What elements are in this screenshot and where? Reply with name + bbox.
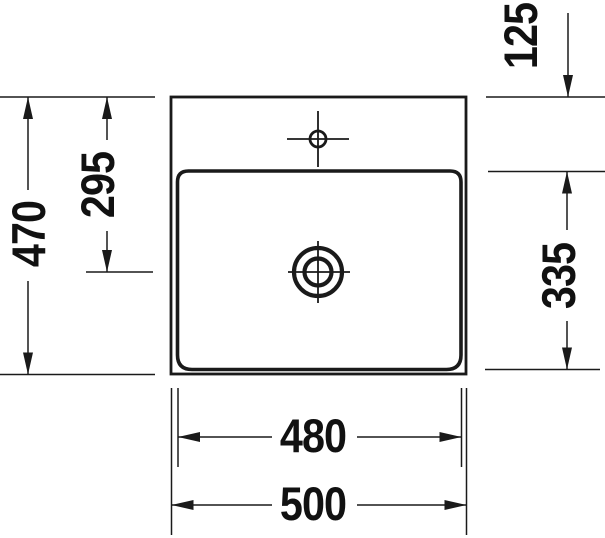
- dimension-470: 470: [4, 97, 56, 375]
- dimension-295: 295: [73, 97, 125, 272]
- arrow-right-icon: [445, 500, 467, 510]
- washbasin-dimension-diagram: 470 295 125 335 480: [0, 0, 605, 538]
- dimension-label-125: 125: [496, 3, 548, 70]
- dimension-label-500: 500: [280, 479, 346, 531]
- dimension-480: 480: [178, 411, 462, 463]
- arrow-left-icon: [178, 432, 200, 442]
- arrow-down-icon: [563, 75, 573, 97]
- dimension-label-480: 480: [280, 411, 346, 463]
- arrow-up-icon: [23, 97, 33, 119]
- dimension-label-295: 295: [73, 152, 125, 219]
- dimension-125: 125: [496, 3, 573, 97]
- dimension-label-335: 335: [534, 243, 586, 310]
- arrow-down-icon: [23, 353, 33, 375]
- dimension-335: 335: [534, 172, 586, 370]
- arrow-left-icon: [172, 500, 194, 510]
- arrow-up-icon: [102, 97, 112, 119]
- arrow-down-icon: [102, 250, 112, 272]
- basin-inner-bowl-outline: [178, 171, 462, 370]
- arrow-right-icon: [440, 432, 462, 442]
- dimension-label-470: 470: [4, 201, 56, 267]
- technical-drawing-canvas: 470 295 125 335 480: [0, 0, 605, 538]
- drain-icon: [288, 241, 350, 303]
- arrow-up-icon: [562, 172, 572, 194]
- faucet-hole-icon: [287, 111, 349, 167]
- dimension-500: 500: [172, 479, 467, 531]
- arrow-down-icon: [562, 348, 572, 370]
